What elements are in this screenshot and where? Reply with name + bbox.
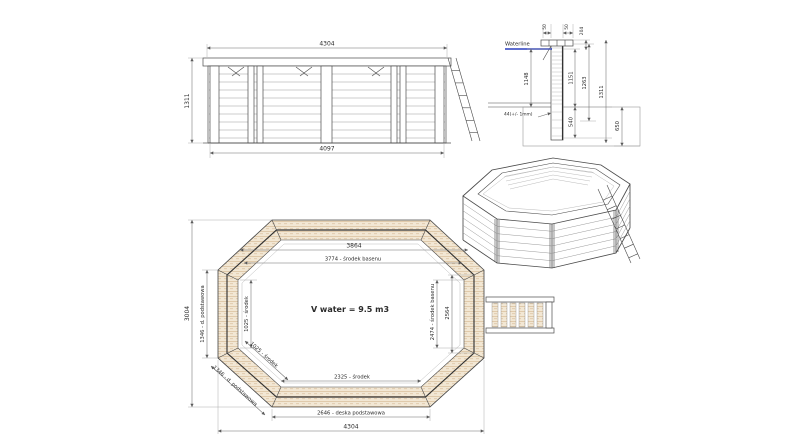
section-dim-1263: 1263 xyxy=(582,76,588,89)
section-dim-cap-left: 50 xyxy=(542,24,548,30)
perspective-view xyxy=(463,158,640,268)
plan-dim-3004: 3004 xyxy=(184,306,191,321)
elevation-dim-height-left: 1311 xyxy=(184,93,191,108)
section-dim-204: 204 xyxy=(579,27,585,36)
section-dim-1148: 1148 xyxy=(524,72,530,85)
section-view: Waterline 50 50 204 1148 44(+/- 1mm) xyxy=(488,24,640,146)
section-note-44: 44(+/- 1mm) xyxy=(504,112,533,118)
section-foundation xyxy=(523,107,640,146)
plan-view: V water = 9.5 m3 3864 3774 - środek base… xyxy=(184,220,554,434)
perspective-ladder xyxy=(598,185,640,263)
elevation-top-rail xyxy=(203,58,451,66)
perspective-planks xyxy=(463,191,630,260)
elevation-dim-width-top: 4304 xyxy=(319,41,334,48)
plan-dim-1346-side: 1346 - d. podstawowa xyxy=(200,285,206,342)
section-dim-1151: 1151 xyxy=(569,71,575,84)
plan-dim-2474: 2474 - środek basenu xyxy=(429,284,436,340)
section-dim-650: 650 xyxy=(615,121,621,131)
section-right-dims: 1151 540 1263 1311 650 xyxy=(563,40,640,146)
elevation-dim-width-bottom: 4097 xyxy=(319,146,334,153)
elevation-view: 4304 1311 xyxy=(184,41,480,159)
section-cap-dims: 50 50 xyxy=(542,24,573,38)
plan-dim-1025-side: 1025 - środek xyxy=(243,296,250,332)
plan-steps xyxy=(486,297,554,333)
perspective-inner-wall xyxy=(504,167,594,189)
plan-volume-label: V water = 9.5 m3 xyxy=(311,305,389,314)
plan-dim-3774: 3774 - środek basenu xyxy=(325,256,381,263)
perspective-posts xyxy=(495,209,618,268)
plan-dim-4304: 4304 xyxy=(343,424,358,431)
section-dim-540: 540 xyxy=(569,117,575,127)
section-dim-cap-right: 50 xyxy=(564,24,570,30)
plan-dim-2646: 2646 - deska podstawowa xyxy=(317,411,385,417)
section-dim-1311: 1311 xyxy=(599,85,605,98)
waterline-label: Waterline xyxy=(505,42,530,48)
drawing-sheet: 4304 1311 xyxy=(0,0,794,446)
plan-dim-2564: 2564 xyxy=(445,306,451,320)
plan-dim-2325: 2325 - środek xyxy=(334,374,370,381)
plan-dim-3864: 3864 xyxy=(346,243,361,250)
pool-technical-drawing: 4304 1311 xyxy=(0,0,794,446)
elevation-ladder xyxy=(448,58,480,141)
